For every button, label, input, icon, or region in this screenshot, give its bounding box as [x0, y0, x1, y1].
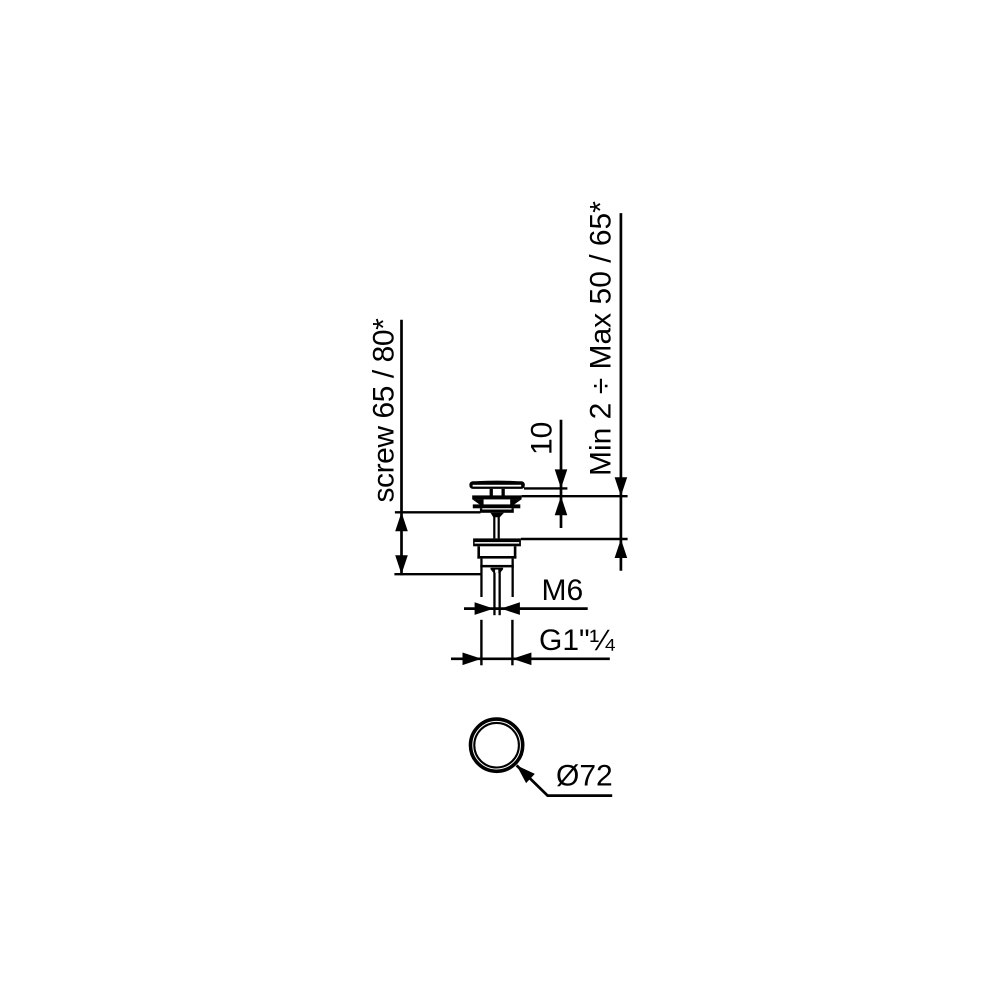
svg-text:Min 2 ÷ Max 50 / 65*: Min 2 ÷ Max 50 / 65* — [585, 201, 618, 476]
svg-text:10: 10 — [526, 422, 559, 455]
svg-text:Ø72: Ø72 — [556, 760, 613, 793]
svg-text:screw 65 / 80*: screw 65 / 80* — [368, 318, 401, 503]
svg-text:G1"¼: G1"¼ — [539, 624, 616, 657]
svg-text:M6: M6 — [542, 574, 584, 607]
